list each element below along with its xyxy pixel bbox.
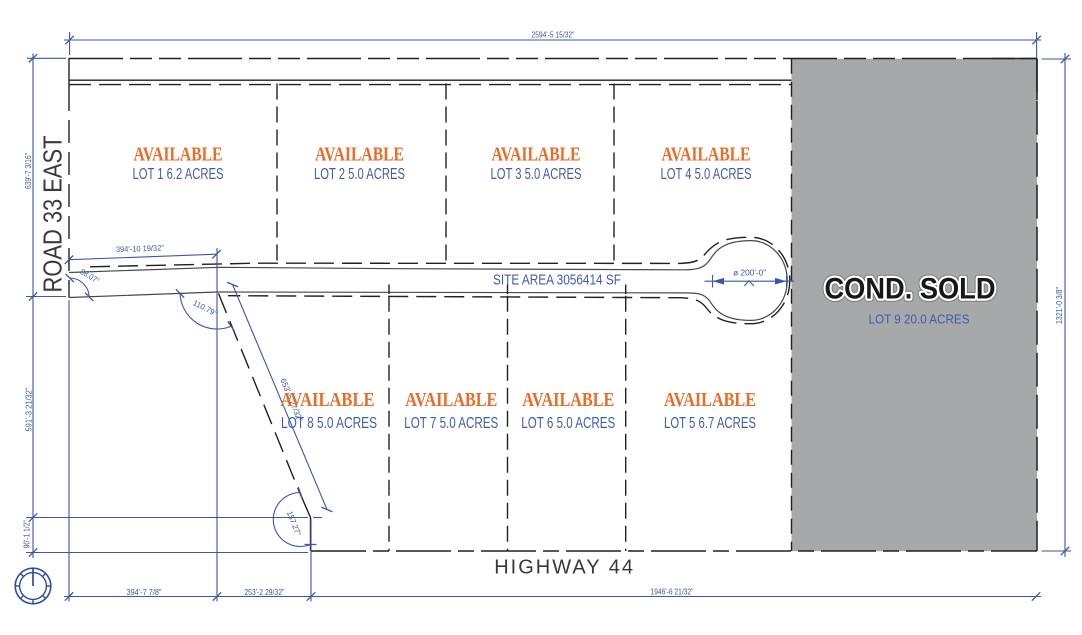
svg-text:LOT 5 6.7 ACRES: LOT 5 6.7 ACRES <box>664 415 756 432</box>
svg-text:AVAILABLE: AVAILABLE <box>492 143 581 165</box>
svg-text:LOT 4 5.0 ACRES: LOT 4 5.0 ACRES <box>661 166 752 183</box>
svg-text:AVAILABLE: AVAILABLE <box>405 389 497 411</box>
svg-text:LOT 3 5.0 ACRES: LOT 3 5.0 ACRES <box>491 166 582 183</box>
svg-text:591'-3 21/32": 591'-3 21/32" <box>25 387 34 431</box>
svg-text:AVAILABLE: AVAILABLE <box>522 389 614 411</box>
svg-text:LOT 6 5.0 ACRES: LOT 6 5.0 ACRES <box>521 415 615 432</box>
svg-text:AVAILABLE: AVAILABLE <box>662 143 751 165</box>
svg-text:ROAD 33 EAST: ROAD 33 EAST <box>40 136 68 293</box>
svg-text:90'-1 1/2": 90'-1 1/2" <box>23 520 32 548</box>
svg-text:1946'-6 21/32": 1946'-6 21/32" <box>651 587 694 596</box>
svg-text:AVAILABLE: AVAILABLE <box>281 389 375 411</box>
svg-text:LOT 1 6.2 ACRES: LOT 1 6.2 ACRES <box>133 166 224 183</box>
svg-text:394'-7 7/8": 394'-7 7/8" <box>127 588 162 597</box>
svg-text:LOT 9 20.0 ACRES: LOT 9 20.0 ACRES <box>869 312 970 327</box>
svg-text:2594'-5 15/32": 2594'-5 15/32" <box>532 30 575 39</box>
svg-text:COND. SOLD: COND. SOLD <box>825 273 996 306</box>
svg-text:AVAILABLE: AVAILABLE <box>315 143 404 165</box>
svg-text:LOT 8 5.0 ACRES: LOT 8 5.0 ACRES <box>281 415 377 432</box>
svg-text:1321'-0 3/8": 1321'-0 3/8" <box>1055 287 1064 324</box>
svg-text:ø 200'-0": ø 200'-0" <box>733 269 766 278</box>
svg-text:AVAILABLE: AVAILABLE <box>134 143 223 165</box>
svg-text:LOT 7 5.0 ACRES: LOT 7 5.0 ACRES <box>404 415 498 432</box>
svg-text:SITE AREA 3056414 SF: SITE AREA 3056414 SF <box>493 273 621 289</box>
svg-text:HIGHWAY 44: HIGHWAY 44 <box>494 557 635 579</box>
svg-text:394'-10 19/32": 394'-10 19/32" <box>116 243 164 254</box>
svg-text:639'-7 3/16": 639'-7 3/16" <box>24 153 33 189</box>
svg-text:AVAILABLE: AVAILABLE <box>664 389 756 411</box>
svg-text:LOT 2 5.0 ACRES: LOT 2 5.0 ACRES <box>314 166 405 183</box>
svg-text:253'-2 29/32": 253'-2 29/32" <box>244 588 284 597</box>
